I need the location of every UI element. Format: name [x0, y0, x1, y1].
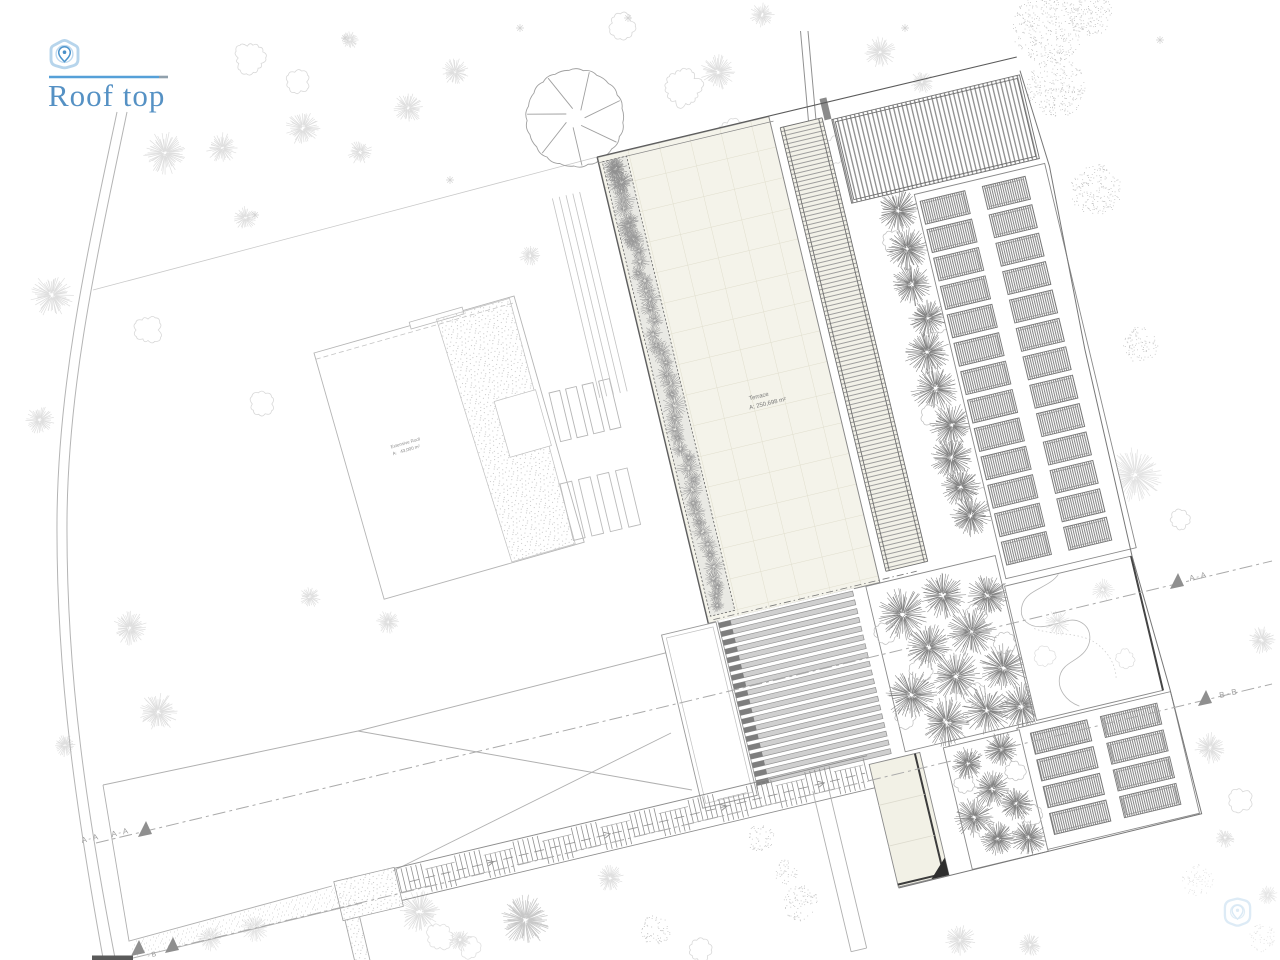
svg-text:Roof top: Roof top — [48, 78, 165, 113]
